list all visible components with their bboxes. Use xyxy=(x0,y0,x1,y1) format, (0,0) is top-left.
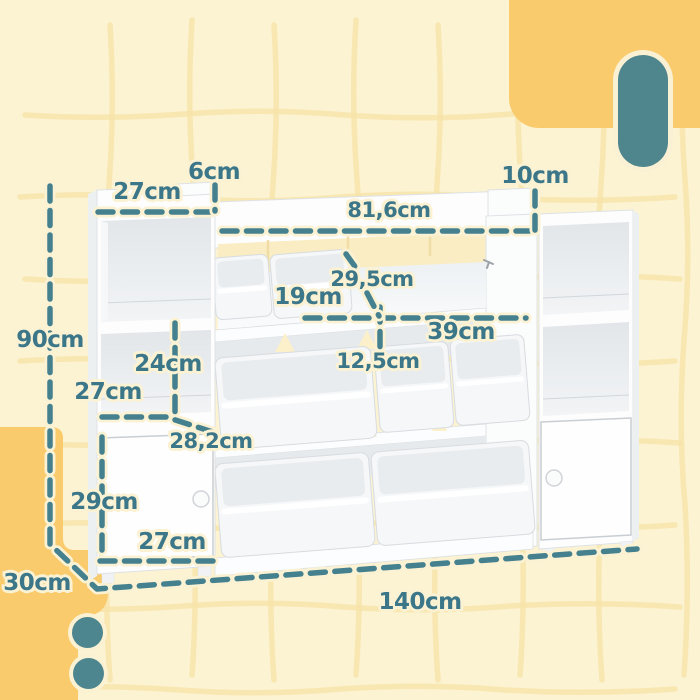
dim-label-front-lip-height: 12,5cm xyxy=(336,349,419,373)
dim-label-total-depth: 30cm xyxy=(3,570,71,596)
dim-slot-depth-pointer-top xyxy=(346,254,356,268)
dim-label-door-height: 29cm xyxy=(70,489,138,515)
dim-label-cubby-width: 27cm xyxy=(74,379,142,405)
dim-label-cubby-height: 24cm xyxy=(134,351,202,377)
dim-label-slot-depth: 29,5cm xyxy=(330,267,413,291)
dim-label-door-width: 27cm xyxy=(138,529,206,555)
dim-label-middle-top-width: 81,6cm xyxy=(347,198,430,222)
dim-label-shelf-depth: 39cm xyxy=(427,319,495,345)
dim-label-right-lip-height: 10cm xyxy=(501,163,569,189)
dim-label-left-lip-height: 6cm xyxy=(188,159,240,185)
dim-label-left-top-width: 27cm xyxy=(113,179,181,205)
dim-label-total-height: 90cm xyxy=(16,327,84,353)
dim-label-total-width: 140cm xyxy=(378,589,461,615)
dim-label-shelf-diagonal: 28,2cm xyxy=(169,429,252,453)
page: 27cm6cm81,6cm10cm90cm19cm29,5cm39cm24cm1… xyxy=(0,0,700,700)
